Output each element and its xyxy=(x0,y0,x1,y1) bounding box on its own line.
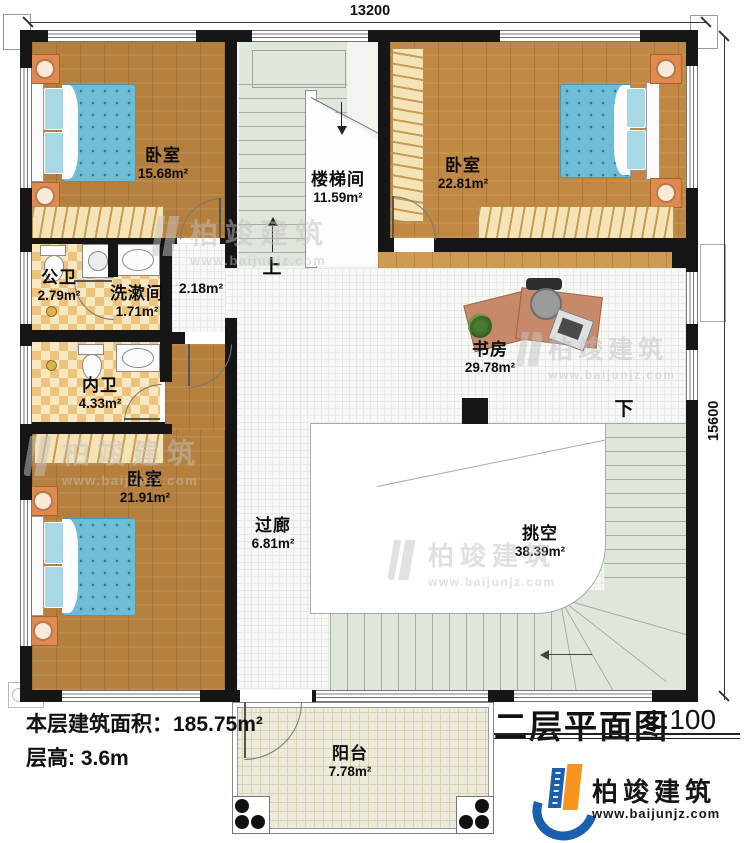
watermark: 柏竣建筑 www.baijunjz.com xyxy=(24,432,202,490)
sink xyxy=(122,348,154,368)
room-label-bedroom-top-left: 卧室15.68m² xyxy=(118,146,208,182)
headboard xyxy=(646,82,660,180)
lamp-icon xyxy=(33,491,53,511)
stairs-direction-line xyxy=(341,102,342,126)
post-column-icon xyxy=(475,799,489,813)
pillow xyxy=(44,88,64,130)
headboard xyxy=(30,516,44,616)
floor-plan-canvas: 13200 15600 xyxy=(0,0,750,843)
window xyxy=(686,66,698,188)
window xyxy=(686,272,698,324)
post-column-icon xyxy=(459,815,473,829)
lamp-icon xyxy=(35,186,55,206)
wall-band-column xyxy=(672,252,686,268)
window xyxy=(48,30,196,42)
room-label-private-bath: 内卫4.33m² xyxy=(64,376,136,412)
stairs-fan-step xyxy=(560,598,584,690)
window xyxy=(20,68,32,188)
plan-title: 二层平面图 xyxy=(494,700,669,748)
floor-area-text: 本层建筑面积：185.75m² xyxy=(26,708,263,738)
nightstand xyxy=(650,178,682,208)
balcony-post xyxy=(456,796,494,834)
window xyxy=(62,690,200,702)
arrow-left-icon xyxy=(540,650,549,660)
room-label-stairwell: 楼梯间11.59m² xyxy=(295,170,381,206)
window xyxy=(500,30,640,42)
lamp-icon xyxy=(33,621,53,641)
watermark-logo-icon xyxy=(152,216,182,256)
window xyxy=(686,350,698,400)
balcony-post xyxy=(232,796,270,834)
dimension-right-label: 15600 xyxy=(706,386,740,456)
door-opening-balcony xyxy=(240,690,312,702)
wardrobe xyxy=(478,206,674,240)
pillow xyxy=(44,132,64,174)
title-underline xyxy=(494,738,740,739)
arrow-down-icon xyxy=(337,126,347,135)
lamp-icon xyxy=(656,183,676,203)
plant-icon xyxy=(468,314,492,338)
watermark-logo-icon xyxy=(388,540,418,580)
window xyxy=(252,30,368,42)
floor-drain-icon xyxy=(46,306,57,317)
dimension-line-top xyxy=(28,22,706,23)
dimension-top-label: 13200 xyxy=(335,3,405,19)
wall-stairwell-bedroom2 xyxy=(378,42,390,252)
plan-scale: 1:100 xyxy=(646,704,716,736)
bed-sheet xyxy=(62,519,78,613)
watermark-logo-icon xyxy=(516,332,542,366)
stairs-direction-line xyxy=(548,654,592,655)
brand-name: 柏竣建筑 xyxy=(592,772,716,809)
pillow xyxy=(44,566,64,608)
bed-sheet xyxy=(62,85,78,179)
wardrobe xyxy=(32,206,164,240)
window xyxy=(20,346,32,424)
door-leaf xyxy=(188,344,190,386)
lamp-icon xyxy=(35,59,55,79)
stairs-fan-step xyxy=(560,598,667,682)
nightstand xyxy=(650,54,682,84)
door-leaf xyxy=(124,418,160,420)
room-label-public-bath: 公卫2.79m² xyxy=(26,268,92,304)
door-leaf xyxy=(392,196,394,238)
stairs-lower-horizontal-flight xyxy=(330,610,556,690)
pillow xyxy=(44,522,64,564)
room-label-corridor: 过廊6.81m² xyxy=(242,516,304,552)
brand-logo-icon xyxy=(532,762,596,828)
column-study-void xyxy=(462,398,488,424)
post-column-icon xyxy=(235,815,249,829)
wall-bath-divider xyxy=(108,243,118,277)
stairs-lower-vertical-flight xyxy=(604,423,686,592)
post-column-icon xyxy=(475,815,489,829)
wall-bedroom3-right xyxy=(225,318,237,690)
room-label-hallway-area: 2.18m² xyxy=(170,280,232,297)
floor-height-text: 层高: 3.6m xyxy=(26,742,129,772)
nightstand xyxy=(28,486,58,516)
lamp-icon xyxy=(656,59,676,79)
stairs-lower-corner xyxy=(556,590,686,690)
sink xyxy=(122,249,154,271)
window xyxy=(316,690,488,702)
post-column-icon xyxy=(235,799,249,813)
pillow xyxy=(626,130,646,170)
dimension-line-right xyxy=(724,36,725,700)
pillow xyxy=(626,88,646,128)
nightstand xyxy=(28,616,58,646)
watermark: 柏竣建筑 www.baijunjz.com xyxy=(152,212,330,270)
ac-platform-right xyxy=(700,244,726,322)
watermark: 柏竣建筑 www.baijunjz.com xyxy=(388,536,556,591)
wall-bedroom2-bottom-stub xyxy=(390,238,394,252)
window xyxy=(20,500,32,646)
void-diagonal-line xyxy=(377,440,605,487)
wall-vestibule-top-left xyxy=(165,332,185,344)
room-label-washroom: 洗漱间1.71m² xyxy=(102,284,172,320)
wall-bath-row-bottom xyxy=(20,330,172,342)
wall-bedroom2-bottom xyxy=(434,238,686,252)
wood-band-hall xyxy=(378,252,672,268)
room-label-balcony: 阳台7.78m² xyxy=(316,744,384,780)
headboard xyxy=(30,82,44,182)
watermark: 柏竣建筑 www.baijunjz.com xyxy=(516,330,676,384)
watermark-logo-icon xyxy=(24,436,54,476)
title-underline xyxy=(494,733,740,735)
post-column-icon xyxy=(251,815,265,829)
stairs-down-label: 下 xyxy=(606,394,642,421)
floor-drain-icon xyxy=(46,360,57,371)
brand-url: www.baijunjz.com xyxy=(592,806,720,821)
nightstand xyxy=(30,54,60,84)
stairs-landing-outline xyxy=(252,50,346,88)
room-label-bedroom-top-right: 卧室22.81m² xyxy=(420,156,506,192)
